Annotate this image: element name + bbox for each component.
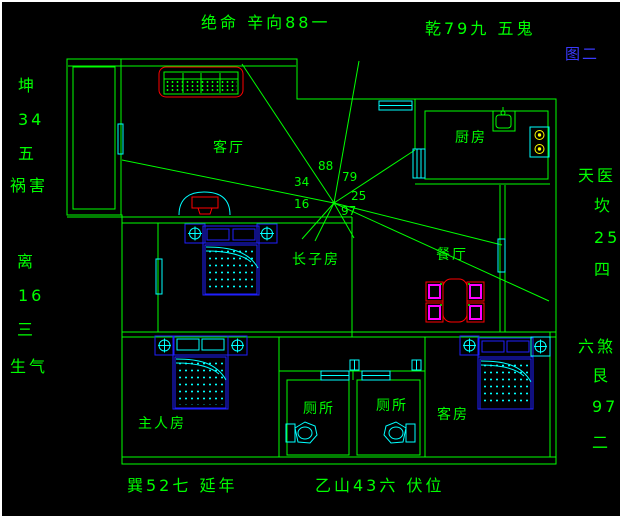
window-door-symbols	[118, 101, 505, 380]
right-lower-gen: 艮	[592, 368, 611, 384]
center-number-88: 88	[318, 160, 333, 172]
door-hatch-hall-right	[412, 360, 421, 370]
door-kitchen	[413, 149, 425, 178]
center-number-25: 25	[351, 190, 366, 202]
cad-floorplan-view: 绝命 辛向88一 乾79九 五鬼 图二 坤 34 五 祸害 离 16 三 生气 …	[0, 0, 622, 518]
right-upper-kan: 坎	[594, 198, 613, 214]
room-label-master: 主人房	[138, 417, 186, 431]
center-number-34: 34	[294, 176, 309, 188]
room-label-dining: 餐厅	[436, 248, 468, 262]
dining-chair	[426, 282, 484, 322]
room-label-eldest-son: 长子房	[292, 253, 340, 267]
sofa-cushion-dots	[165, 80, 237, 93]
room-label-living: 客厅	[213, 141, 245, 155]
room-label-kitchen: 厨房	[455, 131, 487, 145]
nightstand-lamp-icon	[460, 336, 479, 355]
door-hatch-hall-left	[350, 360, 359, 370]
caption-qian-wugui: 乾79九 五鬼	[425, 21, 535, 37]
figure-label: 图二	[565, 47, 599, 62]
left-lower-san: 三	[17, 322, 36, 338]
caption-xun-yannian: 巽52七 延年	[127, 478, 237, 494]
nightstand-lamp-icon	[531, 337, 550, 356]
room-label-guest: 客房	[437, 408, 469, 422]
left-lower-shengqi: 生气	[10, 359, 48, 375]
left-upper-huohai: 祸害	[10, 178, 48, 194]
caption-jueming-xinxiang: 绝命 辛向88一	[201, 15, 330, 31]
right-lower-97: 97	[592, 399, 618, 415]
left-lower-li: 离	[17, 254, 36, 270]
dining-set	[426, 279, 484, 322]
kitchen-sink	[493, 107, 515, 131]
right-upper-tianyi: 天医	[578, 168, 616, 184]
window-son-room	[156, 259, 162, 294]
left-upper-wu: 五	[18, 146, 37, 162]
toilet-left-fixture	[286, 422, 317, 443]
right-upper-25: 25	[594, 230, 620, 246]
toilet-right-fixture	[384, 422, 415, 443]
right-lower-er: 二	[592, 435, 611, 451]
window-toilet-left	[321, 371, 349, 380]
room-label-toilet-left: 厕所	[303, 402, 335, 416]
window-toilet-right	[362, 371, 390, 380]
window-top	[379, 101, 412, 110]
left-lower-16: 16	[18, 288, 44, 304]
mattress-dots-master	[177, 360, 224, 405]
nightstand-lamp-icon	[185, 224, 205, 243]
tv-cabinet	[179, 192, 230, 215]
left-upper-34: 34	[18, 112, 44, 128]
center-number-79: 79	[342, 171, 357, 183]
mattress-dots-son	[207, 248, 255, 292]
left-upper-kun: 坤	[18, 78, 37, 94]
nightstand-lamp-icon	[155, 336, 174, 355]
right-upper-si: 四	[594, 262, 613, 278]
caption-yishan-fuwei: 乙山43六 伏位	[315, 478, 444, 494]
room-label-toilet-right: 厕所	[376, 399, 408, 413]
chair-dots	[440, 283, 470, 306]
compass-center-marker	[333, 202, 336, 205]
center-number-16: 16	[294, 198, 309, 210]
center-number-97: 97	[341, 205, 356, 217]
mattress-dots-guest	[482, 362, 529, 406]
nightstand-lamp-icon	[228, 336, 247, 355]
right-lower-liusha: 六煞	[578, 339, 616, 355]
stove	[530, 127, 549, 157]
nightstand-lamp-icon	[257, 224, 277, 243]
burner-icon	[535, 131, 544, 154]
